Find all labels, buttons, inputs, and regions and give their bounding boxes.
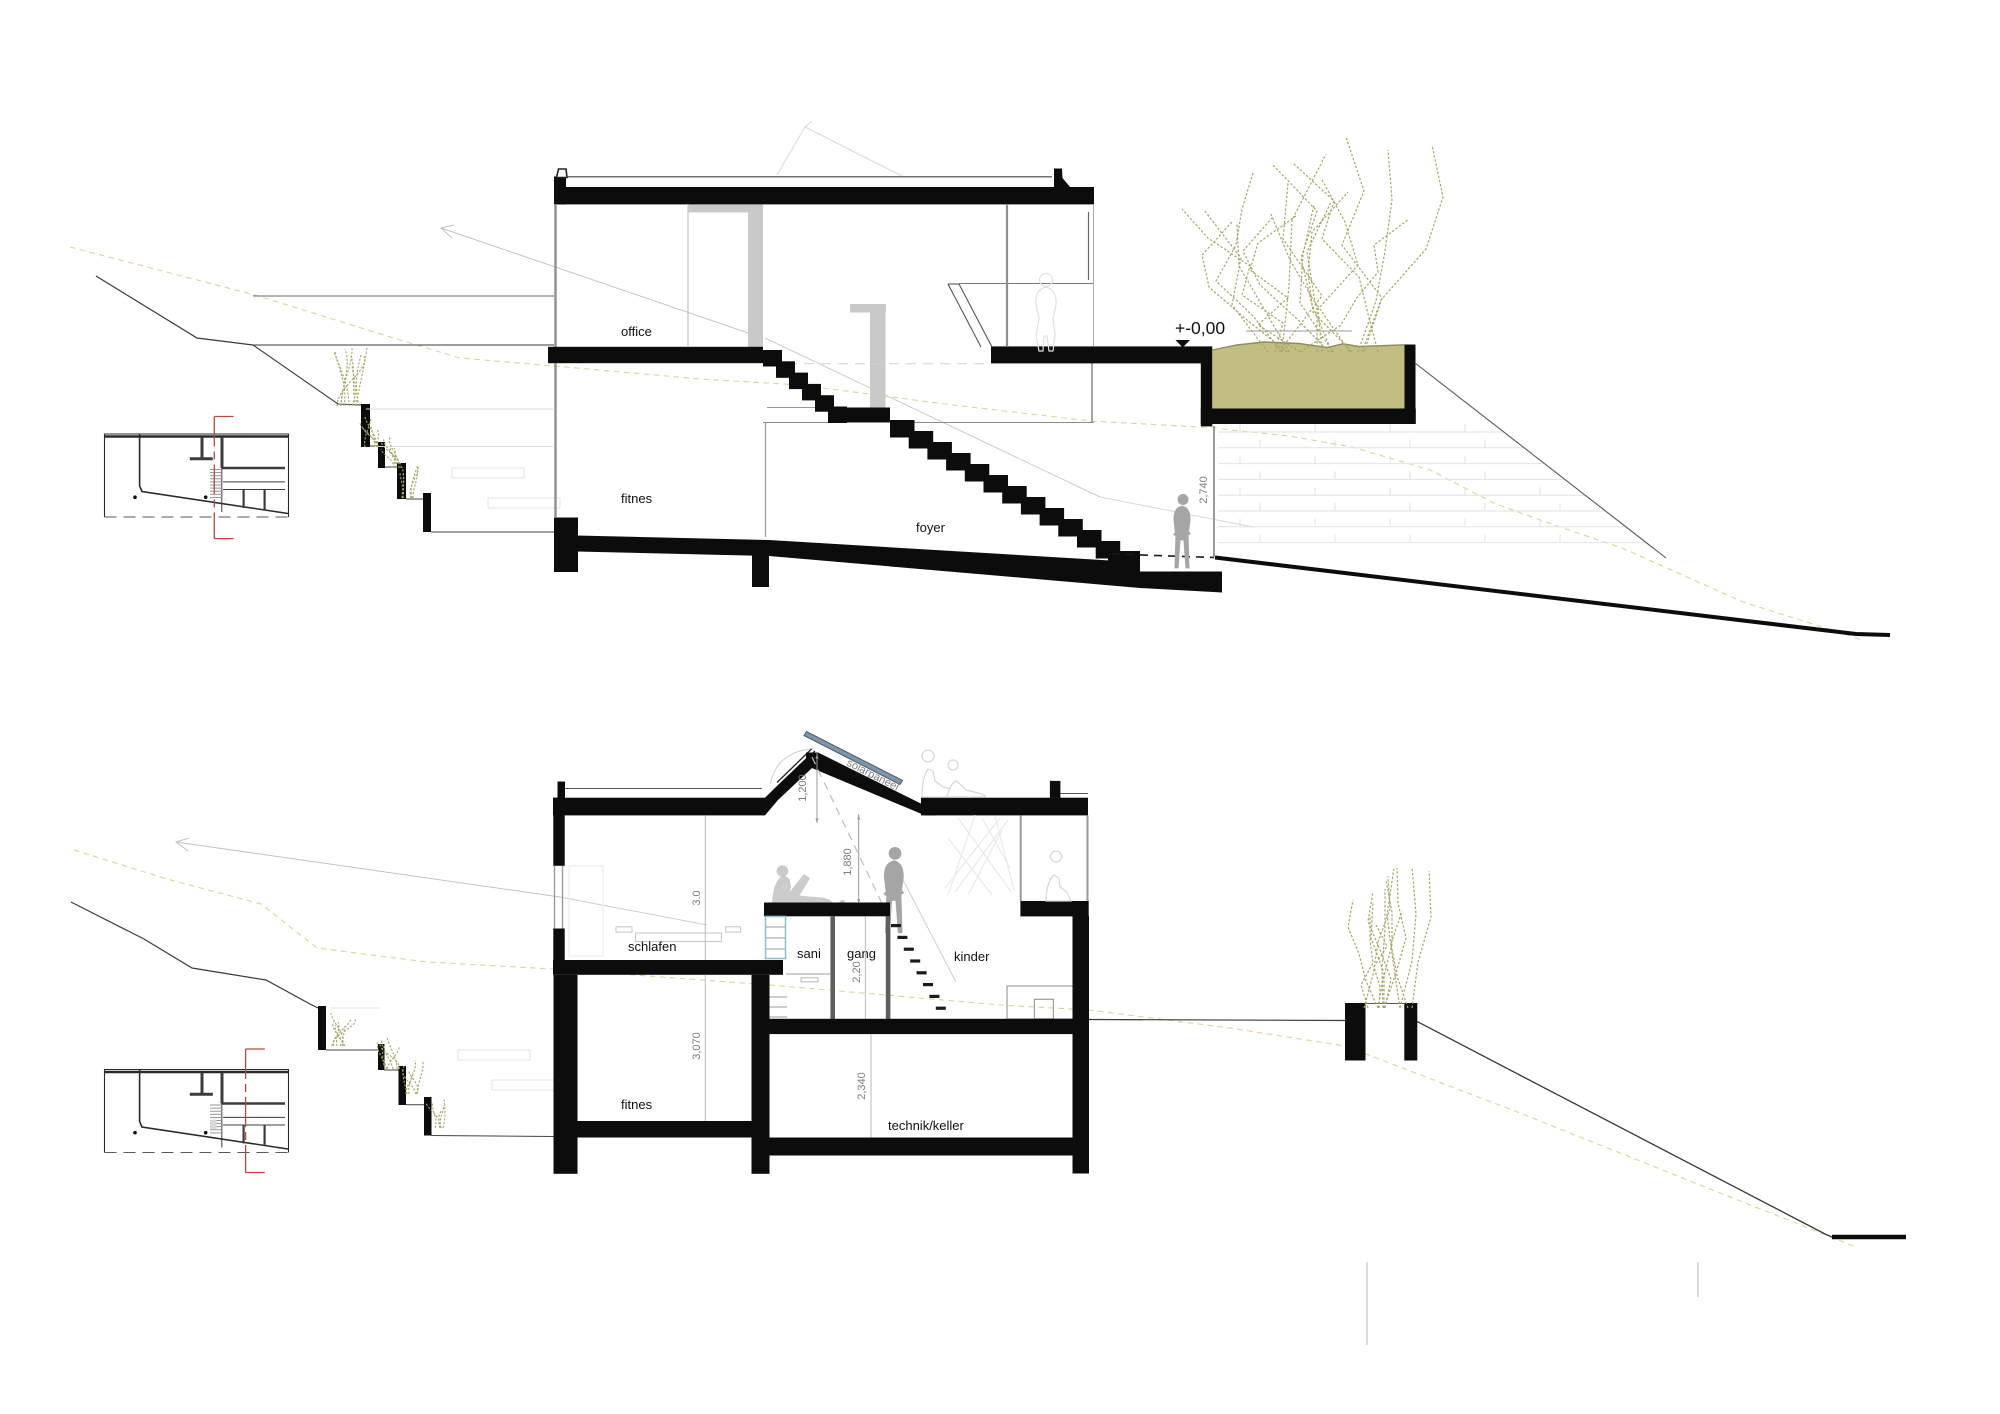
svg-text:1,200: 1,200 xyxy=(797,774,809,802)
svg-text:1,880: 1,880 xyxy=(842,848,854,876)
svg-text:gang: gang xyxy=(847,946,876,961)
svg-text:2,20: 2,20 xyxy=(851,961,863,982)
svg-text:kinder: kinder xyxy=(954,949,990,964)
svg-text:office: office xyxy=(621,324,652,339)
svg-text:schlafen: schlafen xyxy=(628,939,676,954)
svg-text:fitnes: fitnes xyxy=(621,491,653,506)
svg-text:sani: sani xyxy=(797,946,821,961)
svg-text:technik/keller: technik/keller xyxy=(888,1118,965,1133)
svg-text:foyer: foyer xyxy=(916,520,946,535)
svg-text:+-0,00: +-0,00 xyxy=(1175,318,1225,338)
svg-text:3.0: 3.0 xyxy=(691,890,703,905)
svg-text:3,070: 3,070 xyxy=(691,1032,703,1060)
svg-text:2,340: 2,340 xyxy=(856,1072,868,1100)
svg-text:fitnes: fitnes xyxy=(621,1097,653,1112)
svg-text:2,740: 2,740 xyxy=(1198,476,1210,504)
